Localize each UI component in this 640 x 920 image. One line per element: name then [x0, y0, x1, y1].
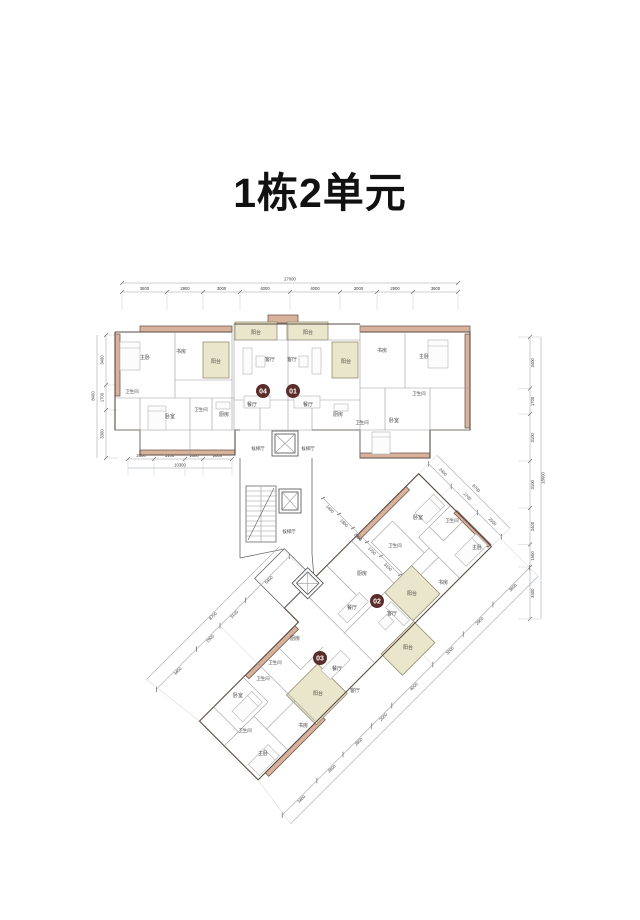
room-label-bath: 卫生间: [256, 675, 269, 682]
svg-text:2900: 2900: [205, 633, 216, 644]
dim-top: 27000 3600 2900 3000 4000 4000 3000 2900…: [120, 277, 460, 311]
room-label-bath: 卫生间: [355, 419, 368, 426]
dim-top-extension-ticks: [122, 294, 458, 310]
dim-label: 3000: [217, 286, 227, 291]
room-label-lift-hall: 候梯厅: [301, 445, 315, 452]
svg-text:8700: 8700: [208, 610, 219, 621]
dim-label: 3600: [431, 286, 441, 291]
room-label-dining: 餐厅: [303, 401, 313, 408]
room-label-master: 主卧: [419, 353, 429, 360]
room-label-lift-hall: 候梯厅: [251, 445, 265, 452]
room-label-balcony: 阳台: [407, 590, 417, 597]
room-label-dining: 餐厅: [332, 665, 342, 672]
dim-label: 1700: [530, 396, 535, 406]
room-label-bath: 卫生间: [194, 406, 207, 413]
dim-bottom-left: 2600 3100 1800 2800 10300: [126, 453, 234, 476]
dim-label: 3600: [140, 286, 150, 291]
core-shaft: 候梯厅 候梯厅 候梯厅: [240, 431, 315, 578]
elevator: [292, 568, 323, 599]
room-label-balcony: 阳台: [341, 358, 351, 365]
dim-label: 2900: [180, 286, 190, 291]
svg-text:03: 03: [316, 656, 324, 663]
room-label-balcony: 阳台: [303, 329, 313, 336]
dim-label: 1700: [100, 392, 105, 402]
shaft-wall: [240, 458, 314, 578]
room-label-kitchen: 厨房: [219, 411, 229, 418]
exterior-wall: [140, 450, 235, 455]
exterior-wall: [115, 334, 120, 396]
exterior-wall: [245, 626, 298, 679]
dim-label: 27000: [284, 277, 296, 282]
dim-label: 10300: [174, 463, 186, 468]
svg-text:3400: 3400: [296, 793, 307, 804]
room-label-bath: 卫生间: [268, 659, 281, 666]
room-label-balcony: 阳台: [211, 358, 221, 365]
exterior-wall: [465, 334, 470, 428]
room-label-bath: 卫生间: [412, 390, 425, 397]
svg-text:2800: 2800: [354, 736, 365, 747]
room-label-living: 客厅: [265, 356, 275, 363]
diagonal-wing-labels: 卧室 卫生间 主卧 卫生间 书房 阳台 厨房 餐厅 客厅 阳台 餐厅 客厅 厨房…: [233, 514, 482, 757]
unit-badge-01: 01: [286, 384, 300, 398]
svg-text:04: 04: [259, 389, 267, 396]
svg-text:1800: 1800: [339, 518, 350, 529]
svg-text:3100: 3100: [383, 562, 394, 573]
svg-text:8700: 8700: [471, 483, 482, 494]
floor-plan-svg: 1栋2单元 27000 3600 2900 3000 4000 4000 300…: [0, 0, 640, 920]
room-label-bath: 卫生间: [125, 388, 138, 395]
svg-text:01: 01: [289, 389, 297, 396]
dim-label: 8400: [91, 391, 96, 401]
unit-badge-03: 03: [313, 651, 327, 665]
svg-text:3400: 3400: [172, 665, 183, 676]
svg-text:3000: 3000: [445, 645, 456, 656]
svg-text:3600: 3600: [508, 582, 519, 593]
svg-text:2900: 2900: [474, 615, 485, 626]
diagonal-wing: 2500 2700 2400 8700 3600 2900 3000 4000 …: [145, 417, 553, 825]
svg-text:2500: 2500: [488, 516, 499, 527]
dim-label: 3100: [530, 479, 535, 489]
dim-label: 4000: [310, 286, 320, 291]
room-label-master: 主卧: [140, 354, 150, 361]
room-label-dining: 餐厅: [247, 401, 257, 408]
room-label-bedroom: 卧室: [413, 514, 423, 521]
exterior-wall: [140, 326, 232, 332]
svg-text:2400: 2400: [438, 467, 449, 478]
svg-text:4000: 4000: [409, 681, 420, 692]
dim-label: 3400: [530, 357, 535, 367]
room-label-bedroom: 卧室: [389, 417, 399, 424]
room-label-master: 主卧: [472, 544, 482, 551]
dim-label: 3000: [354, 286, 364, 291]
exterior-wall: [356, 486, 409, 539]
room-label-bath: 卫生间: [238, 727, 251, 734]
room-label-balcony: 阳台: [403, 644, 413, 651]
exterior-wall: [360, 453, 430, 458]
dim-left: 8400 3400 1700 3300: [91, 333, 119, 460]
dim-label: 2400: [530, 521, 535, 531]
room-label-study: 书房: [377, 347, 387, 354]
dim-label: 3400: [100, 355, 105, 365]
room-label-balcony: 阳台: [251, 329, 261, 336]
furniture: [206, 493, 489, 776]
floor-plan-page: 1栋2单元 27000 3600 2900 3000 4000 4000 300…: [0, 0, 640, 920]
room-label-bedroom: 卧室: [165, 413, 175, 420]
svg-text:5400: 5400: [264, 574, 275, 585]
room-label-study: 书房: [298, 722, 308, 729]
svg-text:1700: 1700: [367, 546, 378, 557]
room-label-bath: 卫生间: [445, 517, 458, 524]
room-label-master: 主卧: [258, 750, 268, 757]
dim-label: 3300: [100, 429, 105, 439]
page-title: 1栋2单元: [233, 170, 407, 216]
svg-text:2600: 2600: [327, 763, 338, 774]
room-label-living: 客厅: [350, 687, 360, 694]
dim-label: 3100: [530, 432, 535, 442]
room-label-kitchen: 厨房: [290, 635, 300, 642]
dim-label: 2900: [390, 286, 400, 291]
elevator: [272, 431, 298, 456]
dim-label: 18600: [541, 472, 546, 484]
room-label-dining: 餐厅: [347, 604, 357, 611]
svg-text:2700: 2700: [462, 491, 473, 502]
room-label-kitchen: 厨房: [357, 570, 367, 577]
unit-badge-02: 02: [370, 594, 384, 608]
room-label-living: 客厅: [287, 356, 297, 363]
room-label-lift-hall: 候梯厅: [282, 528, 296, 535]
room-label-balcony: 阳台: [313, 690, 323, 697]
room-label-bath: 卫生间: [388, 542, 401, 549]
room-label-kitchen: 厨房: [333, 411, 343, 418]
svg-text:2000: 2000: [378, 711, 389, 722]
dim-right: 3400 1700 3100 3100 2400 1500 3400 18600: [518, 335, 546, 621]
exterior-wall: [360, 326, 470, 332]
room-label-study: 书房: [438, 579, 448, 586]
room-label-study: 书房: [176, 348, 186, 355]
dim-label: 1500: [530, 551, 535, 561]
svg-text:02: 02: [373, 599, 381, 606]
dim-diag-se: 3600 2900 3000 4000 2000 2800 2600 3400: [251, 537, 539, 825]
elevator: [279, 489, 301, 513]
staircase: [246, 486, 276, 542]
room-label-living: 客厅: [387, 610, 397, 617]
dim-label: 3400: [530, 588, 535, 598]
dim-label: 4000: [260, 286, 270, 291]
exterior-wall: [265, 716, 325, 776]
room-label-bedroom: 卧室: [233, 692, 243, 699]
svg-text:3100: 3100: [229, 609, 240, 620]
svg-text:1400: 1400: [325, 504, 336, 515]
unit-badge-04: 04: [256, 384, 270, 398]
